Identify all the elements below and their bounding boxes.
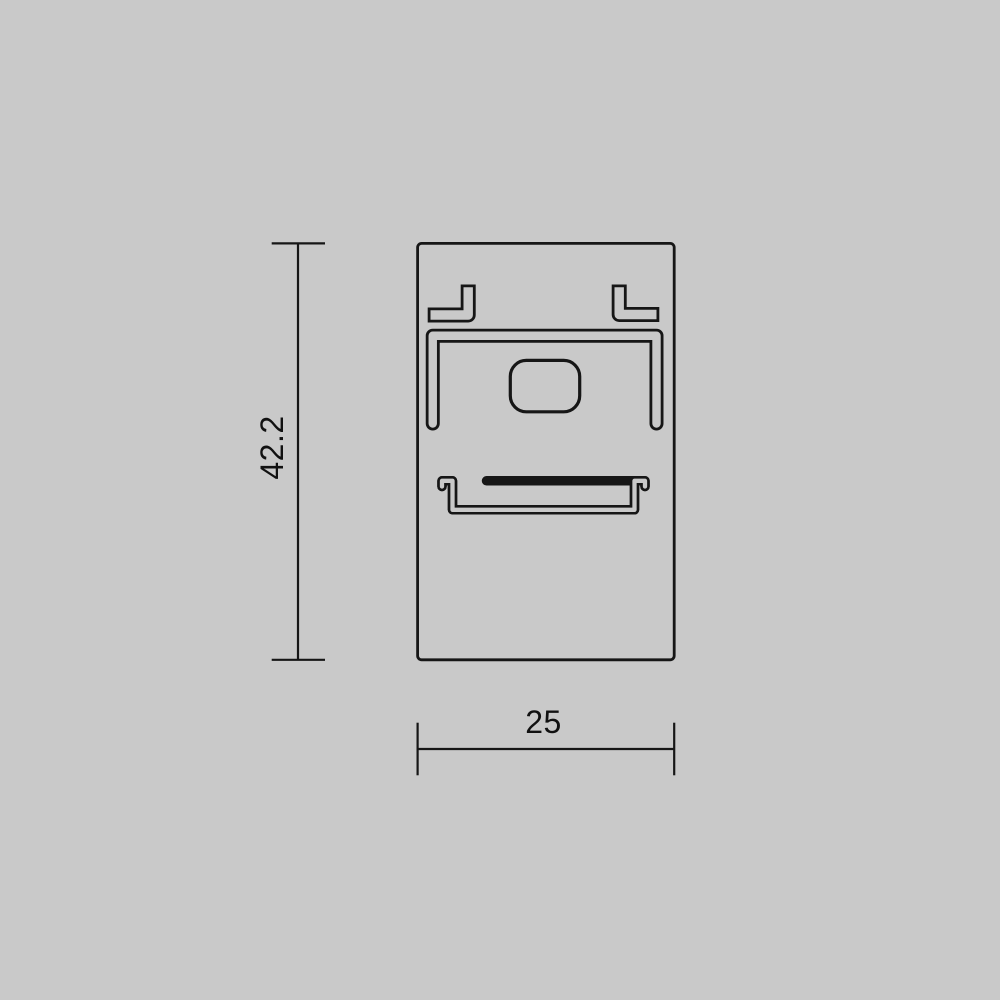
- lower-tray-channel: [442, 481, 645, 510]
- center-cutout: [510, 360, 579, 411]
- width-dimension: 25: [418, 704, 675, 775]
- height-dimension: 42.2: [254, 243, 325, 659]
- height-dimension-label: 42.2: [254, 415, 290, 479]
- width-dimension-label: 25: [525, 704, 562, 740]
- technical-drawing: 42.2 25: [0, 0, 1000, 1000]
- top-right-bracket: [619, 285, 659, 315]
- profile-body-outline: [418, 243, 675, 659]
- top-left-bracket: [428, 285, 469, 316]
- drawing-canvas: 42.2 25: [0, 0, 1000, 1000]
